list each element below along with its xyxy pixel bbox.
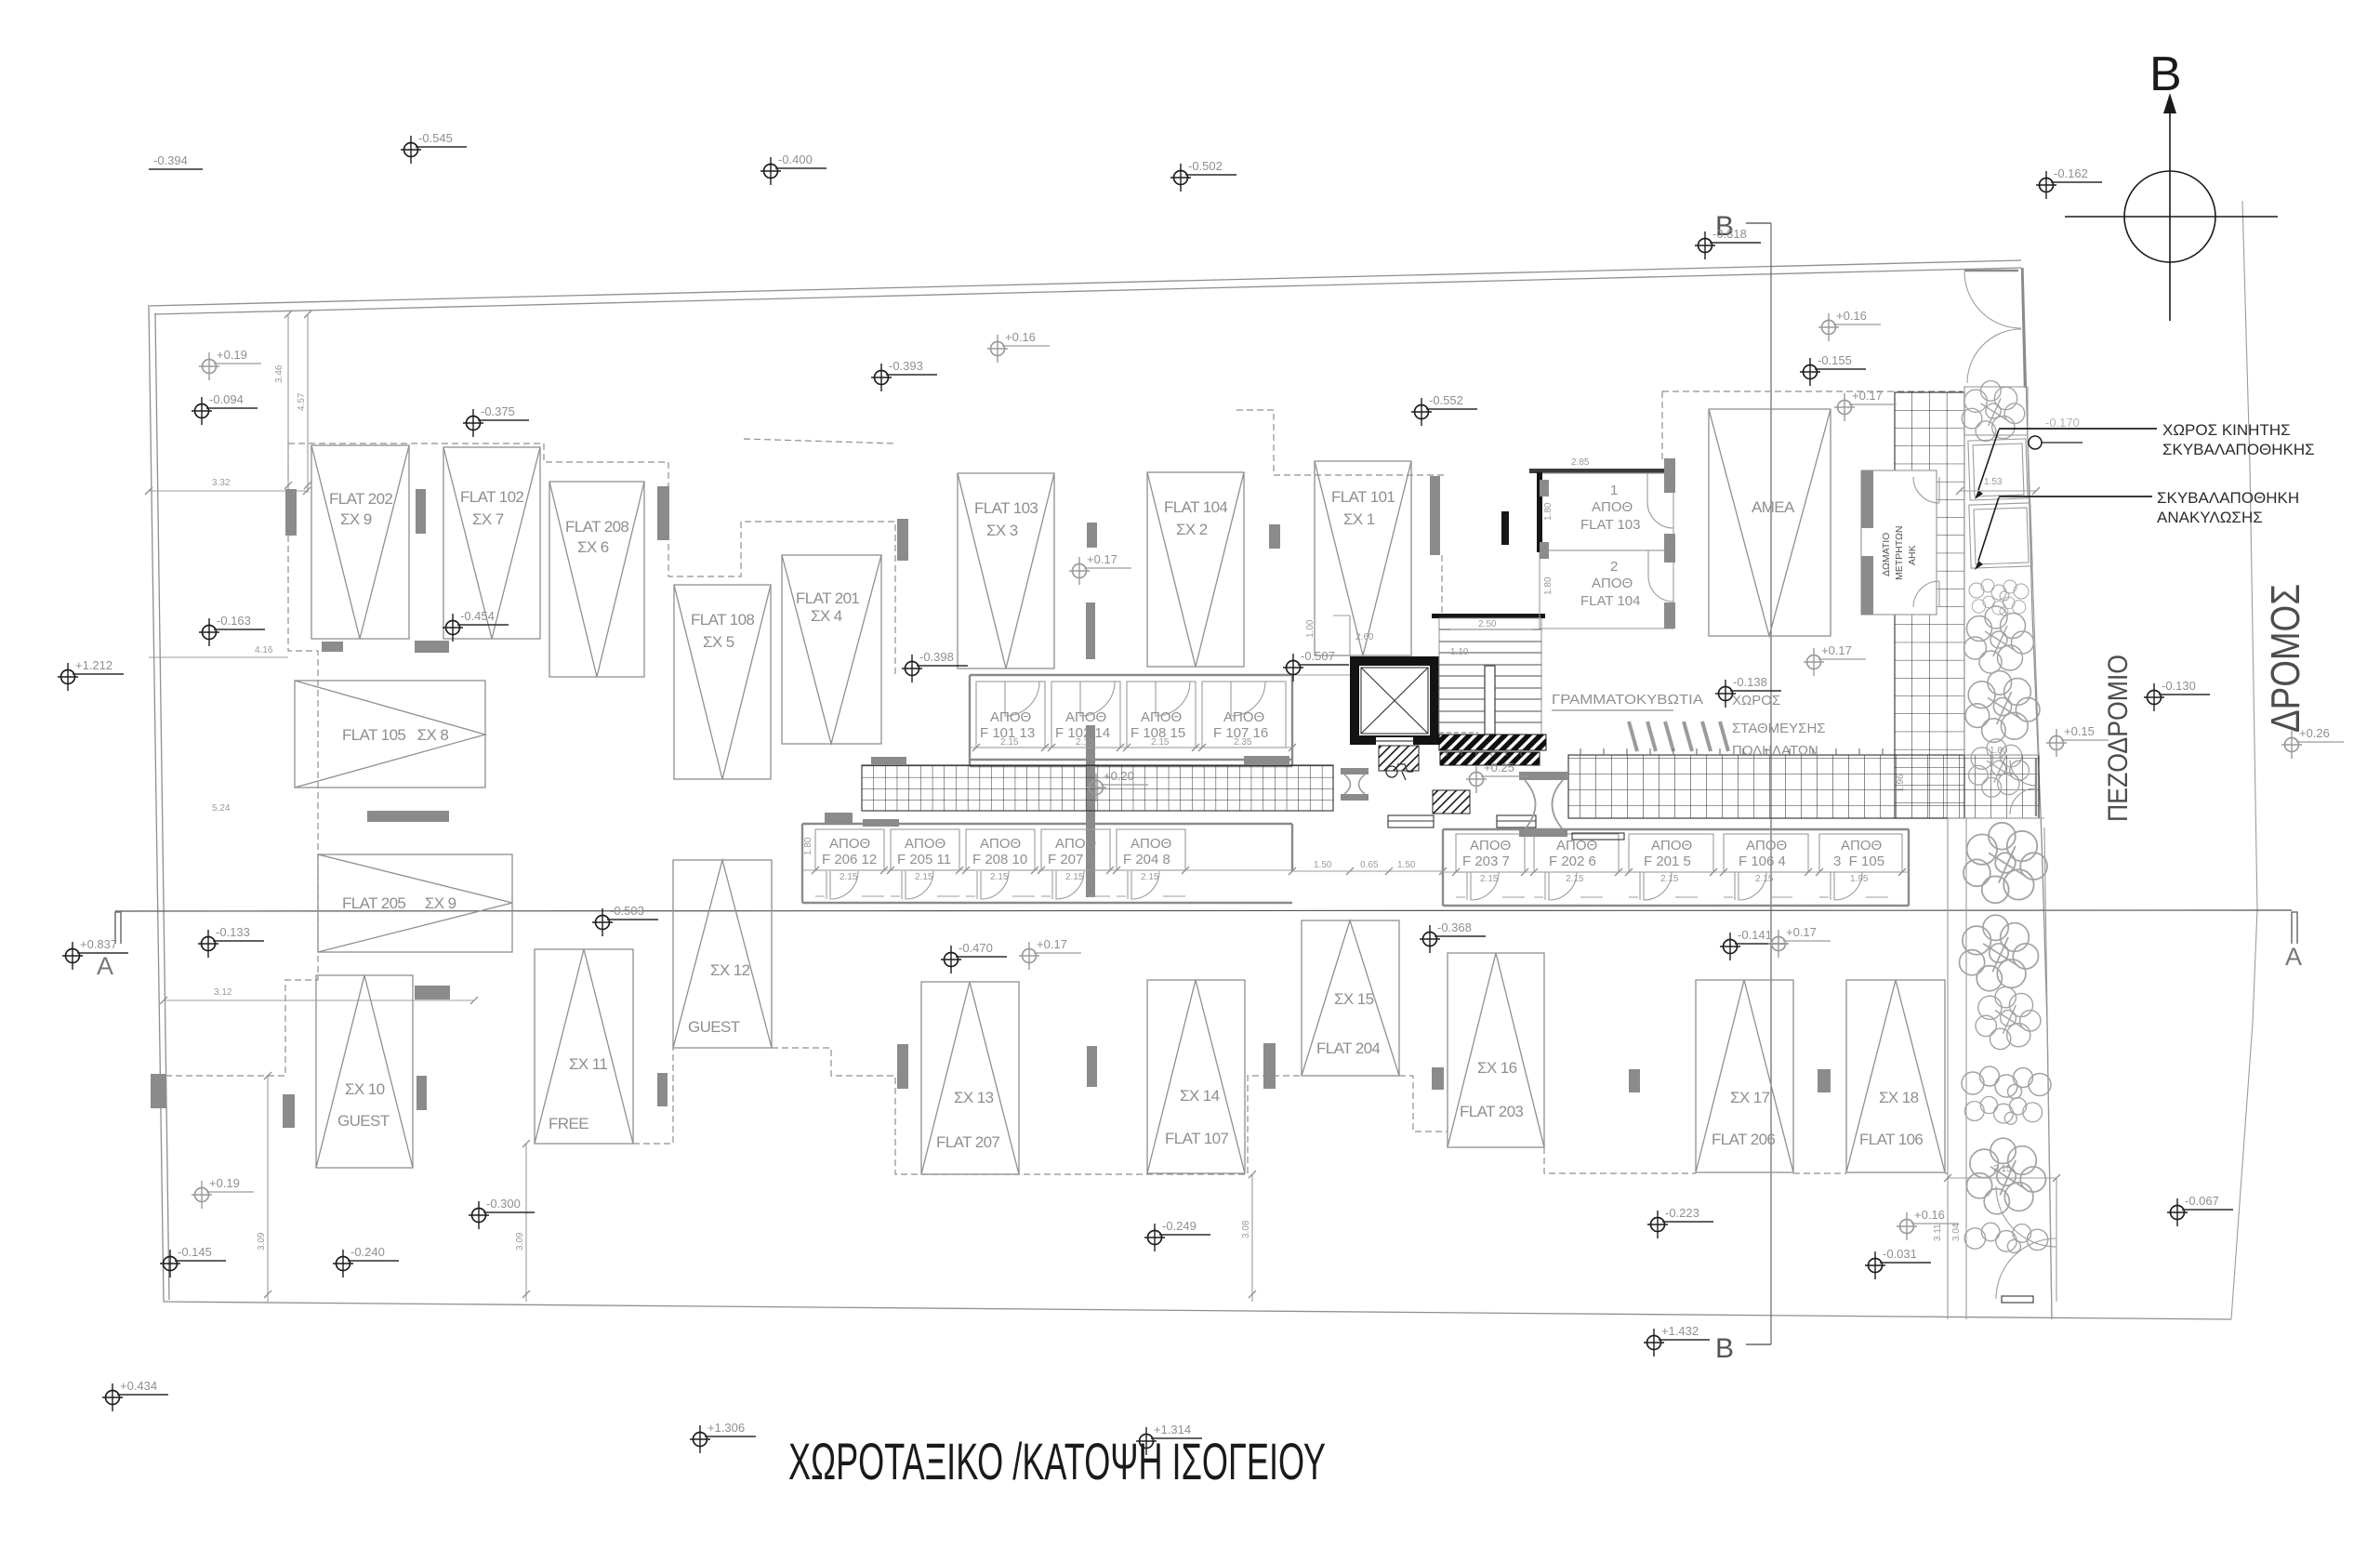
svg-text:FLAT 102: FLAT 102 <box>460 488 523 506</box>
svg-text:-0.375: -0.375 <box>481 404 515 418</box>
svg-text:3.11: 3.11 <box>1933 1224 1943 1241</box>
svg-text:1.96: 1.96 <box>1896 774 1906 792</box>
svg-text:ΑΗΚ: ΑΗΚ <box>1907 545 1918 565</box>
svg-text:ΑΠΟΘ: ΑΠΟΘ <box>1592 499 1633 515</box>
svg-text:ΣΧ 18: ΣΧ 18 <box>1879 1089 1919 1106</box>
svg-text:ΑΠΟΘ: ΑΠΟΘ <box>1055 836 1096 852</box>
svg-text:2.15: 2.15 <box>1000 737 1019 748</box>
svg-text:1: 1 <box>1610 483 1618 498</box>
svg-text:GUEST: GUEST <box>688 1018 740 1036</box>
svg-text:+0.19: +0.19 <box>217 348 247 362</box>
svg-text:2.15: 2.15 <box>1480 874 1499 884</box>
svg-text:2.15: 2.15 <box>1660 874 1679 884</box>
svg-text:+0.837: +0.837 <box>80 937 117 951</box>
svg-text:GUEST: GUEST <box>337 1112 390 1130</box>
svg-text:-0.240: -0.240 <box>350 1245 385 1259</box>
svg-text:-0.031: -0.031 <box>1883 1247 1917 1261</box>
svg-text:1.80: 1.80 <box>1543 502 1554 521</box>
svg-text:2.35: 2.35 <box>1234 737 1252 748</box>
svg-text:FLAT 103: FLAT 103 <box>1580 517 1640 533</box>
svg-text:ΠΕΖΟΔΡΟΜΙΟ: ΠΕΖΟΔΡΟΜΙΟ <box>2103 655 2134 822</box>
svg-text:2.50: 2.50 <box>1478 619 1497 629</box>
svg-text:ΣΧ 15: ΣΧ 15 <box>1334 990 1374 1008</box>
svg-text:-0.162: -0.162 <box>2054 166 2088 180</box>
svg-text:F 201 5: F 201 5 <box>1644 854 1691 869</box>
svg-text:ΣΧ 1: ΣΧ 1 <box>1343 510 1375 528</box>
svg-text:+0.17: +0.17 <box>1852 389 1883 403</box>
svg-text:-0.400: -0.400 <box>778 152 813 166</box>
svg-text:-0.318: -0.318 <box>1712 227 1747 241</box>
svg-text:+0.25: +0.25 <box>1484 761 1514 774</box>
svg-text:ΣΧ 10: ΣΧ 10 <box>345 1080 385 1098</box>
svg-text:ΑΠΟΘ: ΑΠΟΘ <box>1065 709 1106 725</box>
svg-text:ΣΧ 9: ΣΧ 9 <box>340 510 372 528</box>
svg-text:F 206 12: F 206 12 <box>822 852 877 867</box>
svg-text:FLAT 104: FLAT 104 <box>1580 593 1640 609</box>
svg-text:ΣΚΥΒΑΛΑΠΟΘΗΚΗ: ΣΚΥΒΑΛΑΠΟΘΗΚΗ <box>2157 489 2299 507</box>
svg-text:2: 2 <box>1610 559 1618 575</box>
svg-text:+1.314: +1.314 <box>1154 1423 1191 1436</box>
svg-text:1.80: 1.80 <box>1990 746 2008 756</box>
svg-text:+0.16: +0.16 <box>1836 309 1867 323</box>
svg-text:3.09: 3.09 <box>515 1232 525 1251</box>
svg-text:+0.17: +0.17 <box>1786 925 1817 939</box>
svg-text:0.65: 0.65 <box>1360 860 1379 870</box>
svg-text:ΠΟΔΗΛΑΤΩΝ: ΠΟΔΗΛΑΤΩΝ <box>1732 743 1818 759</box>
svg-text:F 208 10: F 208 10 <box>972 852 1027 867</box>
svg-text:+0.16: +0.16 <box>1914 1208 1945 1222</box>
svg-text:ΑΠΟΘ: ΑΠΟΘ <box>1841 838 1882 854</box>
svg-text:ΑΠΟΘ: ΑΠΟΘ <box>990 709 1031 725</box>
svg-text:-0.545: -0.545 <box>418 131 453 145</box>
svg-text:+0.15: +0.15 <box>2064 724 2095 738</box>
svg-text:2.85: 2.85 <box>1571 457 1590 468</box>
svg-text:3.46: 3.46 <box>274 364 284 383</box>
svg-text:-0.300: -0.300 <box>486 1197 521 1211</box>
svg-text:ΑΠΟΘ: ΑΠΟΘ <box>1141 709 1182 725</box>
svg-text:FLAT 205 ΣΧ 9: FLAT 205 ΣΧ 9 <box>342 894 456 912</box>
svg-text:F 204 8: F 204 8 <box>1123 852 1170 867</box>
svg-text:3.32: 3.32 <box>212 478 231 488</box>
svg-text:FLAT 208: FLAT 208 <box>565 518 628 536</box>
svg-text:-0.170: -0.170 <box>2045 416 2080 430</box>
svg-text:+0.20: +0.20 <box>1104 769 1134 783</box>
svg-text:ΣΤΑΘΜΕΥΣΗΣ: ΣΤΑΘΜΕΥΣΗΣ <box>1732 721 1826 736</box>
svg-text:3.12: 3.12 <box>214 987 232 998</box>
svg-text:-0.133: -0.133 <box>216 925 250 939</box>
svg-text:-0.138: -0.138 <box>1733 675 1767 689</box>
svg-text:ΔΡΟΜΟΣ: ΔΡΟΜΟΣ <box>2263 584 2308 733</box>
svg-text:ΣΧ 2: ΣΧ 2 <box>1176 521 1208 538</box>
svg-text:2.15: 2.15 <box>1151 737 1170 748</box>
svg-text:ΣΧ 14: ΣΧ 14 <box>1180 1087 1220 1105</box>
svg-text:FREE: FREE <box>549 1115 588 1132</box>
svg-text:ΑΠΟΘ: ΑΠΟΘ <box>1130 836 1171 852</box>
svg-text:ΣΧ 5: ΣΧ 5 <box>703 633 734 651</box>
svg-text:1.53: 1.53 <box>1984 477 2003 487</box>
svg-text:1.80: 1.80 <box>803 837 813 855</box>
svg-text:+0.17: +0.17 <box>1821 643 1852 657</box>
svg-text:ΣΧ 12: ΣΧ 12 <box>710 961 750 979</box>
svg-text:FLAT 108: FLAT 108 <box>691 611 754 629</box>
svg-text:-0.249: -0.249 <box>1162 1219 1197 1233</box>
svg-text:FLAT 206: FLAT 206 <box>1712 1131 1775 1148</box>
svg-text:ΧΩΡΟΣ: ΧΩΡΟΣ <box>1732 693 1780 708</box>
svg-text:FLAT 207: FLAT 207 <box>936 1133 999 1151</box>
svg-text:ΧΩΡΟΤΑΞΙΚΟ /ΚΑΤΟΨΗ ΙΣΟΓΕΙΟΥ: ΧΩΡΟΤΑΞΙΚΟ /ΚΑΤΟΨΗ ΙΣΟΓΕΙΟΥ <box>788 1432 1326 1490</box>
svg-text:F 203 7: F 203 7 <box>1462 854 1510 869</box>
svg-text:4.16: 4.16 <box>255 645 273 655</box>
svg-text:+0.17: +0.17 <box>1037 937 1067 951</box>
svg-text:FLAT 107: FLAT 107 <box>1165 1130 1228 1147</box>
svg-text:+0.19: +0.19 <box>209 1176 240 1190</box>
svg-text:-0.502: -0.502 <box>1188 159 1223 173</box>
svg-text:ΑΠΟΘ: ΑΠΟΘ <box>905 836 945 852</box>
svg-text:F 202 6: F 202 6 <box>1549 854 1596 869</box>
svg-text:2.15: 2.15 <box>1141 872 1159 882</box>
svg-text:A: A <box>2285 943 2302 971</box>
svg-text:ΣΧ 16: ΣΧ 16 <box>1477 1059 1517 1077</box>
svg-text:ΑΠΟΘ: ΑΠΟΘ <box>1746 838 1787 854</box>
svg-text:ΑΠΟΘ: ΑΠΟΘ <box>1470 838 1511 854</box>
svg-text:1.80: 1.80 <box>1543 576 1554 595</box>
svg-text:2.15: 2.15 <box>1993 1164 2012 1174</box>
svg-text:2.15: 2.15 <box>840 872 858 882</box>
svg-text:ΑΠΟΘ: ΑΠΟΘ <box>980 836 1021 852</box>
svg-text:ΣΧ 6: ΣΧ 6 <box>577 538 609 556</box>
svg-text:ΧΩΡΟΣ ΚΙΝΗΤΗΣ: ΧΩΡΟΣ ΚΙΝΗΤΗΣ <box>2162 421 2291 439</box>
svg-text:-0.393: -0.393 <box>889 359 923 373</box>
svg-text:FLAT 101: FLAT 101 <box>1331 488 1395 506</box>
svg-text:FLAT 103: FLAT 103 <box>974 499 1038 517</box>
svg-text:-0.398: -0.398 <box>919 650 954 664</box>
svg-text:ΣΚΥΒΑΛΑΠΟΘΗΚΗΣ: ΣΚΥΒΑΛΑΠΟΘΗΚΗΣ <box>2162 441 2315 458</box>
svg-text:5.24: 5.24 <box>212 803 231 814</box>
svg-text:B: B <box>2149 47 2182 101</box>
svg-text:B: B <box>1715 1333 1734 1364</box>
svg-text:-0.552: -0.552 <box>1429 393 1463 407</box>
svg-text:ΣΧ 17: ΣΧ 17 <box>1730 1089 1770 1106</box>
svg-text:1.10: 1.10 <box>1450 647 1469 657</box>
svg-text:3.09: 3.09 <box>257 1232 267 1251</box>
svg-text:2.15: 2.15 <box>1755 874 1774 884</box>
svg-text:ΑΠΟΘ: ΑΠΟΘ <box>1592 576 1633 591</box>
svg-text:3.08: 3.08 <box>1241 1220 1251 1238</box>
svg-text:AMEA: AMEA <box>1752 498 1795 516</box>
svg-text:-0.094: -0.094 <box>209 392 244 406</box>
svg-text:1.50: 1.50 <box>1314 860 1332 870</box>
svg-text:+0.434: +0.434 <box>120 1379 157 1393</box>
svg-text:ΣΧ 3: ΣΧ 3 <box>986 522 1018 539</box>
svg-text:-0.470: -0.470 <box>959 941 993 955</box>
svg-text:+0.26: +0.26 <box>2299 726 2330 740</box>
svg-text:-0.155: -0.155 <box>1818 353 1852 367</box>
svg-text:2.15: 2.15 <box>1065 872 1084 882</box>
svg-text:-0.368: -0.368 <box>1437 920 1472 934</box>
svg-text:4.57: 4.57 <box>297 392 307 411</box>
svg-text:-0.141: -0.141 <box>1738 928 1772 942</box>
svg-text:-0.507: -0.507 <box>1301 649 1335 663</box>
svg-text:F 205 11: F 205 11 <box>897 852 951 867</box>
svg-text:1.00: 1.00 <box>1305 619 1316 638</box>
svg-text:+1.432: +1.432 <box>1661 1324 1699 1338</box>
svg-text:ΣΧ 4: ΣΧ 4 <box>811 607 842 625</box>
svg-text:2.15: 2.15 <box>990 872 1009 882</box>
svg-text:F 106 4: F 106 4 <box>1739 854 1786 869</box>
svg-text:+1.306: +1.306 <box>707 1421 745 1435</box>
svg-text:FLAT 201: FLAT 201 <box>796 589 859 607</box>
svg-text:A: A <box>97 952 113 980</box>
svg-text:1.95: 1.95 <box>1850 874 1869 884</box>
svg-text:F 207 9: F 207 9 <box>1048 852 1095 867</box>
svg-text:-0.145: -0.145 <box>178 1245 212 1259</box>
svg-text:3 F 105: 3 F 105 <box>1833 854 1884 869</box>
svg-text:ΣΧ 11: ΣΧ 11 <box>569 1055 607 1073</box>
svg-text:FLAT 105 ΣΧ 8: FLAT 105 ΣΧ 8 <box>342 726 448 744</box>
svg-text:2.15: 2.15 <box>1566 874 1584 884</box>
svg-text:+0.17: +0.17 <box>1087 552 1117 566</box>
svg-text:-0.130: -0.130 <box>2162 679 2196 693</box>
svg-text:-0.163: -0.163 <box>217 614 251 628</box>
svg-text:FLAT 204: FLAT 204 <box>1316 1039 1380 1057</box>
svg-text:FLAT 202: FLAT 202 <box>329 490 392 508</box>
svg-text:-0.503: -0.503 <box>610 904 644 918</box>
svg-text:+0.16: +0.16 <box>1005 330 1036 344</box>
svg-text:ΔΩΜΑΤΙΟ: ΔΩΜΑΤΙΟ <box>1881 533 1892 576</box>
svg-text:3.04: 3.04 <box>1951 1223 1962 1241</box>
svg-text:ΑΠΟΘ: ΑΠΟΘ <box>1223 709 1264 725</box>
svg-text:ΑΠΟΘ: ΑΠΟΘ <box>829 836 870 852</box>
svg-text:-0.394: -0.394 <box>153 153 188 167</box>
svg-text:-0.067: -0.067 <box>2185 1194 2219 1208</box>
svg-text:ΑΠΟΘ: ΑΠΟΘ <box>1651 838 1692 854</box>
svg-text:ΜΕΤΡΗΤΩΝ: ΜΕΤΡΗΤΩΝ <box>1894 526 1905 580</box>
svg-text:FLAT 106: FLAT 106 <box>1859 1131 1923 1148</box>
svg-text:+1.212: +1.212 <box>75 658 112 672</box>
svg-text:2.15: 2.15 <box>1076 737 1094 748</box>
svg-text:2.15: 2.15 <box>915 872 933 882</box>
svg-text:-0.223: -0.223 <box>1665 1206 1699 1220</box>
svg-text:ΑΝΑΚΥΛΩΣΗΣ: ΑΝΑΚΥΛΩΣΗΣ <box>2157 509 2263 526</box>
svg-text:ΣΧ 13: ΣΧ 13 <box>954 1089 994 1106</box>
svg-text:ΣΧ 7: ΣΧ 7 <box>472 510 504 528</box>
svg-text:FLAT 104: FLAT 104 <box>1164 498 1227 516</box>
svg-text:1.50: 1.50 <box>1397 860 1416 870</box>
svg-text:2.60: 2.60 <box>1355 632 1374 642</box>
svg-text:FLAT 203: FLAT 203 <box>1460 1103 1523 1120</box>
svg-text:ΓΡΑΜΜΑΤΟΚΥΒΩΤΙΑ: ΓΡΑΜΜΑΤΟΚΥΒΩΤΙΑ <box>1552 692 1703 708</box>
svg-text:-0.454: -0.454 <box>460 609 495 623</box>
